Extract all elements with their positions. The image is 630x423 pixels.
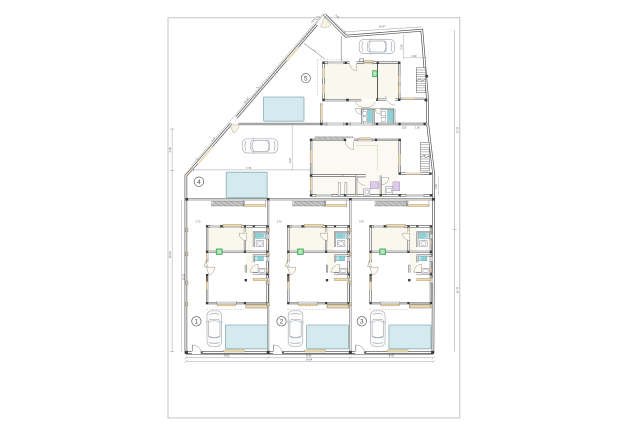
svg-text:2.90: 2.90: [401, 44, 404, 49]
svg-text:0.70: 0.70: [277, 221, 282, 224]
svg-text:11.52: 11.52: [456, 127, 460, 134]
svg-text:24.04: 24.04: [306, 358, 313, 362]
svg-text:14.97: 14.97: [378, 24, 386, 28]
svg-text:5: 5: [304, 75, 308, 82]
svg-text:0.70: 0.70: [359, 221, 364, 224]
svg-text:11.42: 11.42: [456, 287, 460, 294]
svg-text:4.25: 4.25: [289, 157, 292, 162]
svg-text:3: 3: [360, 319, 364, 326]
svg-text:4.18: 4.18: [168, 147, 172, 153]
svg-text:3.02: 3.02: [435, 184, 438, 189]
svg-text:2: 2: [280, 319, 284, 326]
svg-text:7.72: 7.72: [246, 166, 252, 170]
svg-text:1: 1: [195, 319, 199, 326]
svg-text:2.50: 2.50: [402, 126, 407, 129]
svg-text:0.70: 0.70: [196, 221, 201, 224]
svg-text:1.50: 1.50: [415, 126, 420, 129]
svg-text:16.50: 16.50: [168, 251, 172, 258]
svg-text:2.30: 2.30: [412, 55, 417, 58]
svg-text:4: 4: [197, 179, 201, 186]
